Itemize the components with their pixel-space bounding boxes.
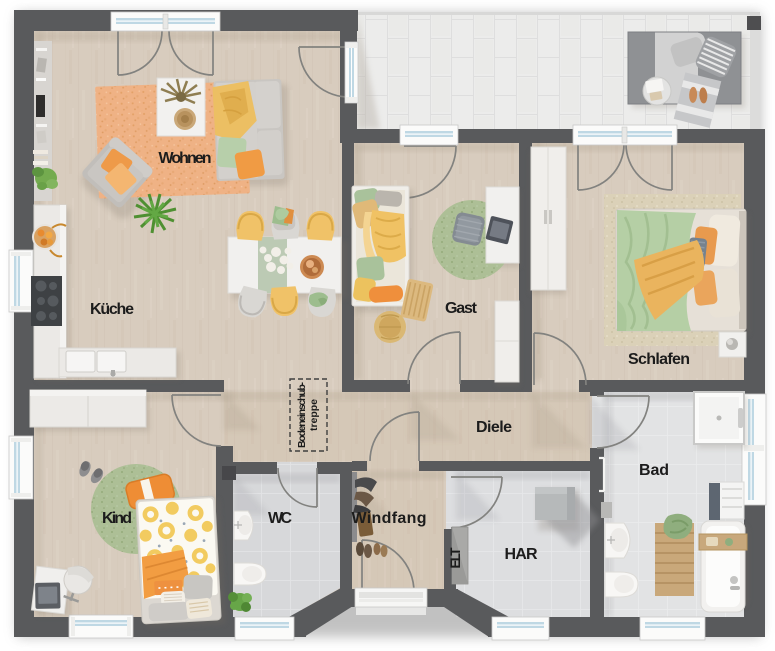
svg-text:Bodeneinschub-: Bodeneinschub- — [296, 382, 308, 449]
svg-text:HAR: HAR — [505, 546, 538, 563]
svg-text:Schlafen: Schlafen — [628, 351, 690, 368]
svg-text:Gast: Gast — [445, 300, 478, 317]
svg-text:Windfang: Windfang — [352, 510, 427, 527]
svg-text:Wohnen: Wohnen — [159, 150, 212, 167]
svg-text:ELT: ELT — [448, 547, 463, 569]
svg-text:treppe: treppe — [308, 399, 320, 431]
svg-text:Bad: Bad — [639, 462, 669, 479]
svg-text:WC: WC — [268, 510, 292, 527]
svg-text:Küche: Küche — [90, 301, 134, 318]
svg-text:Diele: Diele — [476, 419, 512, 436]
svg-text:Kind: Kind — [102, 510, 132, 527]
